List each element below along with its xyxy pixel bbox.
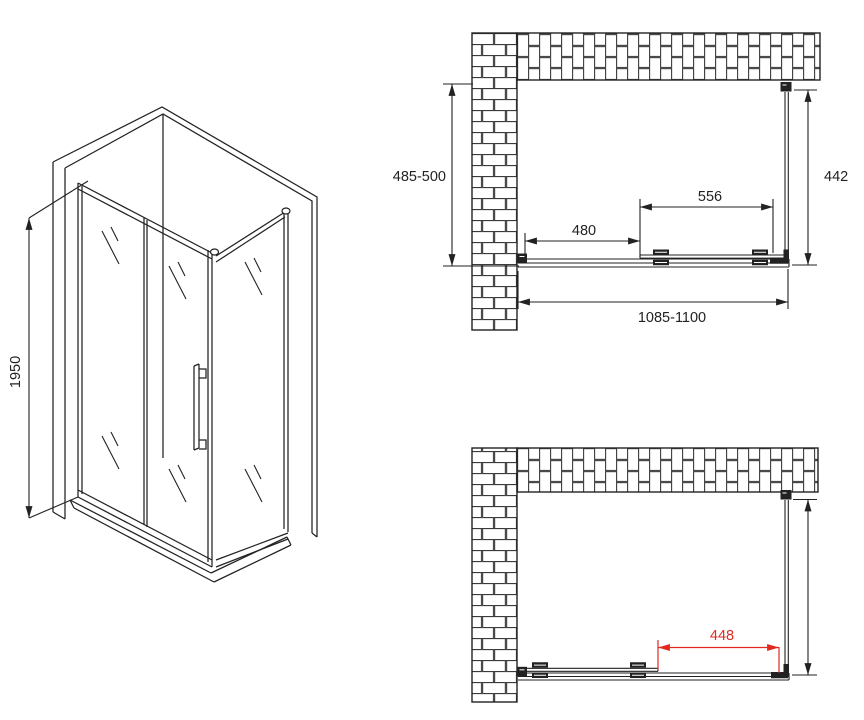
side-panel [785,92,788,258]
front-frame [78,183,212,567]
door-handle [194,364,206,450]
wall-bracket-right [781,82,792,92]
corner-profile-right [771,664,789,678]
extension-lines [658,640,779,673]
dimension-overall: 1085-1100 [518,269,788,326]
dimension-opening: 448 [658,628,779,673]
dimension-side-panel: 442 [792,90,848,265]
door-label: 556 [698,189,722,205]
wall-bracket-right [781,490,792,500]
extension-lines [518,269,788,309]
depth-label: 485-500 [393,169,446,185]
shower-tray [70,500,291,582]
technical-drawing-canvas: 1950 485-500 442 556 [0,0,864,720]
dimension-door: 556 [640,189,773,257]
plan-view-open: 448 [472,448,818,702]
glass-reflection-marks [102,227,262,502]
brick-wall-left [472,33,517,330]
sliding-door-closed [640,255,786,258]
dimension-fixed: 480 [525,223,640,257]
side-panel [785,500,788,672]
roller-blocks [532,662,646,678]
bottom-track [518,673,789,680]
extension-lines [792,500,817,676]
height-label: 1950 [8,356,24,388]
roller-slits [655,252,766,262]
extension-lines [640,199,773,257]
dimension-side-panel-bottom [792,500,817,676]
plan-view-closed: 485-500 442 556 480 1085-1100 [393,33,848,330]
wall-profile-left [518,667,528,677]
brick-wall-left [472,448,517,702]
opening-label: 448 [710,628,734,644]
overall-width-label: 1085-1100 [638,310,706,326]
extension-lines [792,90,817,265]
fixed-label: 480 [572,223,596,239]
door-rollers [532,662,646,678]
side-panel-label: 442 [824,169,848,185]
corner-walls [53,107,317,537]
wall-profile-left [518,254,528,264]
roller-slits [534,665,644,675]
dimension-height: 1950 [8,181,88,518]
shower-enclosure-drawing: 1950 485-500 442 556 [0,0,864,720]
extension-lines [29,181,88,518]
iso-view: 1950 [8,107,317,582]
frame-cap-side [282,208,290,214]
brick-wall-top [517,448,818,492]
side-panel-frame [216,210,288,567]
frame-cap-front [211,249,219,255]
sliding-door-open [519,668,658,671]
brick-wall-top [517,33,820,80]
